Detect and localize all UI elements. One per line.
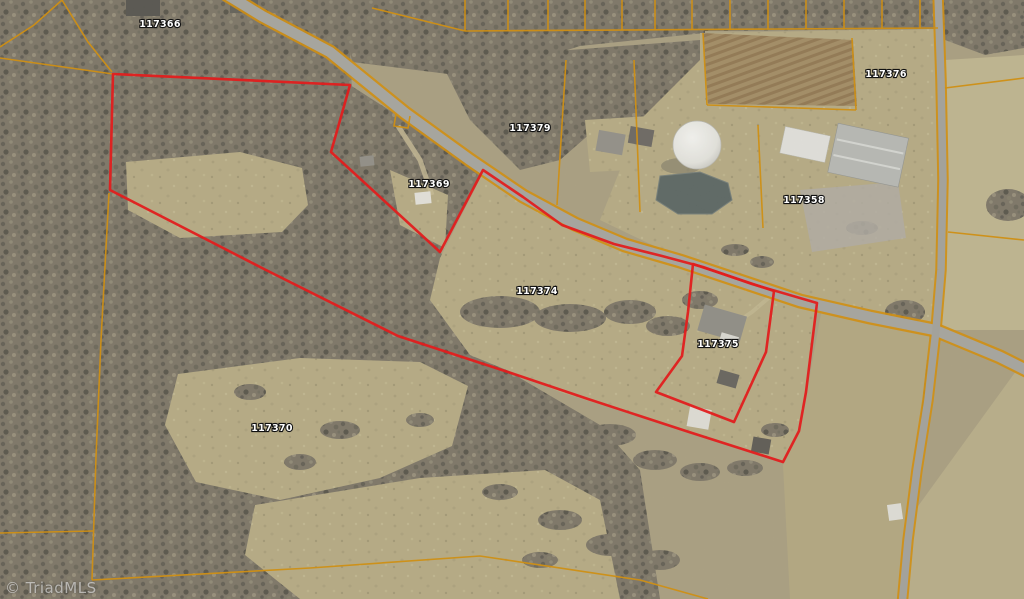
parcel-label-117370: 117370 [251, 423, 293, 434]
parcel-label-117376: 117376 [865, 69, 907, 80]
parcel-line [852, 38, 856, 110]
parcel-line [92, 193, 109, 580]
parcel-line [0, 58, 113, 74]
parcel-line [703, 33, 707, 105]
parcel-line [0, 0, 62, 47]
lot-strip-line [465, 28, 938, 31]
parcel-line [62, 0, 112, 72]
parcel-line [948, 232, 1024, 240]
parcel-line [92, 556, 708, 599]
mls-watermark: © TriadMLS [5, 579, 97, 597]
parcel-label-117369: 117369 [408, 179, 449, 190]
parcel-label-117366: 117366 [139, 19, 181, 30]
parcel-label-117379: 117379 [509, 123, 550, 134]
parcel-label-117358: 117358 [783, 195, 825, 206]
parcel-label-117374: 117374 [516, 286, 558, 297]
parcel-line [0, 531, 93, 533]
aerial-map: 1173661173761173791173691173581173741173… [0, 0, 1024, 599]
parcel-line [634, 60, 640, 212]
parcel-label-117375: 117375 [697, 339, 738, 350]
main-road-edge [226, 0, 1024, 372]
parcel-line [557, 60, 566, 205]
parcel-line [707, 105, 856, 110]
parcel-overlay: 1173661173761173791173691173581173741173… [0, 0, 1024, 599]
parcel-line [372, 8, 465, 31]
parcel-line [758, 125, 763, 228]
parcel-line [945, 78, 1024, 88]
